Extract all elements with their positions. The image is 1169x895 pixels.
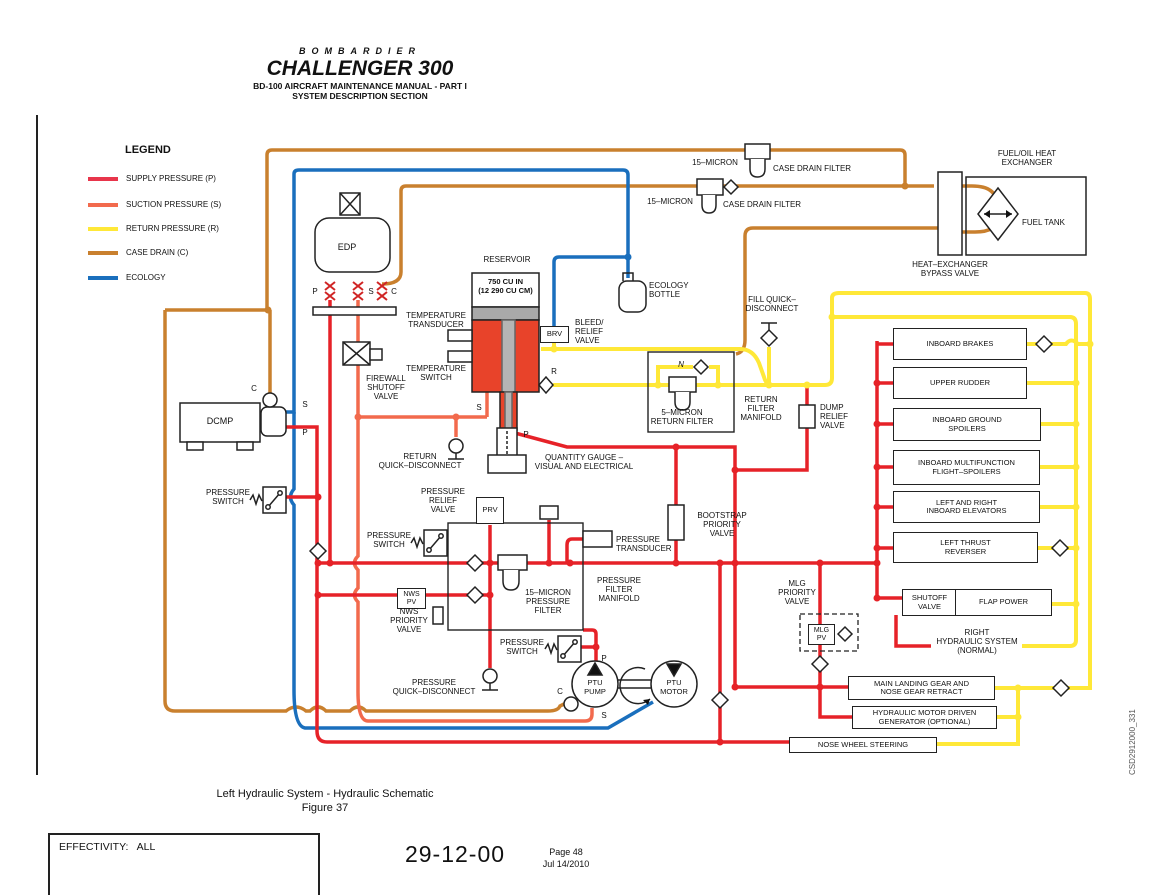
case-drain-lines: [165, 150, 997, 711]
pf-manifold-label: PRESSURE FILTER MANIFOLD: [589, 576, 649, 603]
pressure-switch-3-label: PRESSURE SWITCH: [493, 638, 551, 656]
brand-name: BOMBARDIER: [205, 46, 515, 56]
ptu-case-port-icon: [564, 697, 578, 711]
edp-label: EDP: [327, 243, 367, 252]
figure-number: Figure 37: [160, 802, 490, 814]
return-qd-label: RETURN QUICK–DISCONNECT: [370, 452, 470, 470]
reservoir-port-p: P: [521, 430, 531, 439]
effectivity-box: EFFECTIVITY: ALL: [48, 833, 320, 895]
hx-bypass-valve-icon: [938, 172, 962, 255]
reservoir-standpipe: [502, 320, 515, 392]
temp-transducer-label: TEMPERATURE TRANSDUCER: [400, 311, 472, 329]
manual-title: BD-100 AIRCRAFT MAINTENANCE MANUAL - PAR…: [205, 81, 515, 91]
ptu-pump-label: PTU PUMP: [575, 678, 615, 696]
return-manifold-label: RETURN FILTER MANIFOLD: [731, 395, 791, 422]
flap-power-box: FLAP POWER: [955, 589, 1052, 616]
consumer-inboard-ground-spoilers: INBOARD GROUND SPOILERS: [893, 408, 1041, 441]
cd-filter2-label: CASE DRAIN FILTER: [723, 200, 813, 209]
edp-port-p: P: [310, 287, 320, 296]
check-valve-icon: [724, 180, 738, 194]
page-number: Page 48: [528, 846, 604, 858]
fill-qd-label: FILL QUICK– DISCONNECT: [732, 295, 812, 313]
mlg-priority-label: MLG PRIORITY VALVE: [762, 579, 832, 606]
legend-item-supply: SUPPLY PRESSURE (P): [126, 174, 256, 183]
dcmp-port-c: C: [249, 384, 259, 393]
pressure-filter-label: 15–MICRON PRESSURE FILTER: [518, 588, 578, 615]
bootstrap-label: BOOTSTRAP PRIORITY VALVE: [688, 511, 756, 538]
fuel-tank-label: FUEL TANK: [1022, 218, 1082, 227]
nws-pv-box: NWS PV: [397, 588, 426, 609]
page-date: Page 48 Jul 14/2010: [528, 846, 604, 870]
pressure-transducer-icon: [583, 531, 612, 547]
check-valve-icon: [310, 543, 326, 559]
aircraft-model: CHALLENGER 300: [205, 57, 515, 81]
hx-bypass-label: HEAT–EXCHANGER BYPASS VALVE: [900, 260, 1000, 278]
check-valve-icon: [838, 627, 852, 641]
nws-box: NOSE WHEEL STEERING: [789, 737, 937, 753]
temp-switch-icon: [448, 351, 472, 362]
dcmp-foot: [237, 442, 253, 450]
reservoir-port-s: S: [474, 403, 484, 412]
case-drain-filter-2-icon: [697, 179, 723, 195]
dcmp-port-s: S: [300, 400, 310, 409]
mlg-retract-box: MAIN LANDING GEAR AND NOSE GEAR RETRACT: [848, 676, 995, 700]
check-valve-icon: [1052, 540, 1068, 556]
ecology-bottle-icon: [619, 281, 646, 312]
ptu-motor-label: PTU MOTOR: [654, 678, 694, 696]
figure-caption: Left Hydraulic System - Hydraulic Schema…: [160, 788, 490, 800]
return-qd-icon: [449, 439, 463, 453]
hmdg-box: HYDRAULIC MOTOR DRIVEN GENERATOR (OPTION…: [852, 706, 997, 729]
cd-filter2-micron: 15–MICRON: [643, 197, 697, 206]
shutoff-valve-box: SHUTOFF VALVE: [902, 589, 957, 616]
pressure-filter-icon: [498, 555, 527, 570]
ptu-port-c: C: [555, 687, 565, 696]
legend-title: LEGEND: [125, 146, 205, 155]
edp-port-s: S: [366, 287, 376, 296]
ptu-port-p: P: [599, 654, 609, 663]
temp-switch-label: TEMPERATURE SWITCH: [400, 364, 472, 382]
legend-item-suction: SUCTION PRESSURE (S): [126, 200, 256, 209]
effectivity-value: ALL: [137, 841, 156, 853]
dump-relief-label: DUMP RELIEF VALVE: [820, 403, 864, 430]
reservoir-capacity: 750 CU IN (12 290 CU CM): [472, 277, 539, 295]
check-valve-icon: [1036, 336, 1052, 352]
effectivity-label: EFFECTIVITY:: [59, 841, 128, 853]
manual-section: SYSTEM DESCRIPTION SECTION: [205, 91, 515, 101]
consumer-left-thrust-reverser: LEFT THRUST REVERSER: [893, 532, 1038, 563]
n-check-label: N: [675, 360, 687, 369]
legend-swatch-return: [88, 227, 118, 231]
dcmp-port-p: P: [300, 428, 310, 437]
revision-date: Jul 14/2010: [528, 858, 604, 870]
reservoir-port-r: R: [549, 367, 559, 376]
quantity-gauge-label: QUANTITY GAUGE – VISUAL AND ELECTRICAL: [526, 453, 642, 471]
pressure-qd-label: PRESSURE QUICK–DISCONNECT: [374, 678, 494, 696]
dump-relief-valve-icon: [799, 405, 815, 428]
nws-priority-label: NWS PRIORITY VALVE: [379, 607, 439, 634]
reservoir-label: RESERVOIR: [477, 255, 537, 264]
check-valve-icon: [467, 587, 483, 603]
edp-port-disconnect-icons: [325, 282, 387, 300]
pressure-relief-label: PRESSURE RELIEF VALVE: [414, 487, 472, 514]
dcmp-pump-head: [261, 407, 286, 436]
consumer-inboard-multifunction: INBOARD MULTIFUNCTION FLIGHT–SPOILERS: [893, 450, 1040, 485]
right-hyd-label: RIGHT HYDRAULIC SYSTEM (NORMAL): [927, 628, 1027, 655]
pressure-switch-2-label: PRESSURE SWITCH: [360, 531, 418, 549]
legend-item-ecology: ECOLOGY: [126, 273, 256, 282]
firewall-plate: [313, 307, 396, 315]
return-filter-label: 5–MICRON RETURN FILTER: [640, 408, 724, 426]
page-header: BOMBARDIER CHALLENGER 300 BD-100 AIRCRAF…: [205, 46, 515, 101]
legend-swatch-ecology: [88, 276, 118, 280]
legend-swatch-suction: [88, 203, 118, 207]
consumer-inboard-brakes: INBOARD BRAKES: [893, 328, 1027, 360]
check-valve-icon: [1053, 680, 1069, 696]
legend-item-casedrain: CASE DRAIN (C): [126, 248, 256, 257]
legend-swatch-casedrain: [88, 251, 118, 255]
quantity-gauge-base: [488, 455, 526, 473]
cd-filter1-label: CASE DRAIN FILTER: [773, 164, 863, 173]
pressure-switch-1-label: PRESSURE SWITCH: [198, 488, 258, 506]
legend-item-return: RETURN PRESSURE (R): [126, 224, 256, 233]
check-valve-icon: [467, 555, 483, 571]
drawing-id: CSD2912000_331: [1128, 645, 1137, 775]
pressure-transducer-probe: [540, 506, 558, 519]
firewall-sov-tab: [370, 349, 382, 360]
brv-box: BRV: [540, 326, 569, 343]
consumer-upper-rudder: UPPER RUDDER: [893, 367, 1027, 399]
pressure-transducer-label: PRESSURE TRANSDUCER: [616, 535, 676, 553]
ptu-port-s: S: [599, 711, 609, 720]
reservoir-tube-core: [505, 392, 512, 430]
dcmp-label: DCMP: [195, 417, 245, 426]
return-filter-icon: [669, 377, 696, 392]
ata-number: 29-12-00: [395, 841, 515, 868]
temp-transducer-icon: [448, 330, 472, 341]
case-drain-filter-1-icon: [745, 144, 770, 159]
legend-swatch-supply: [88, 177, 118, 181]
reservoir-band: [472, 307, 539, 320]
bleed-relief-label: BLEED/ RELIEF VALVE: [575, 318, 619, 345]
consumer-inboard-elevators: LEFT AND RIGHT INBOARD ELEVATORS: [893, 491, 1040, 523]
dcmp-case-port-icon: [263, 393, 277, 407]
dcmp-foot: [187, 442, 203, 450]
reservoir-return-port-icon: [539, 377, 553, 393]
schematic-lines: [0, 0, 1169, 895]
ecology-bottle-label: ECOLOGY BOTTLE: [649, 281, 699, 299]
check-valve-icon: [712, 692, 728, 708]
check-valve-icon: [812, 656, 828, 672]
fuel-oil-hx-label: FUEL/OIL HEAT EXCHANGER: [977, 149, 1077, 167]
edp-port-c: C: [389, 287, 399, 296]
cd-filter1-micron: 15–MICRON: [688, 158, 742, 167]
manual-page: BOMBARDIER CHALLENGER 300 BD-100 AIRCRAF…: [0, 0, 1169, 895]
prv-box: PRV: [476, 497, 504, 524]
ptu-shaft-arrow: [620, 668, 650, 704]
return-check-valve-icon: [694, 360, 708, 374]
mlg-pv-box: MLG PV: [808, 624, 835, 645]
